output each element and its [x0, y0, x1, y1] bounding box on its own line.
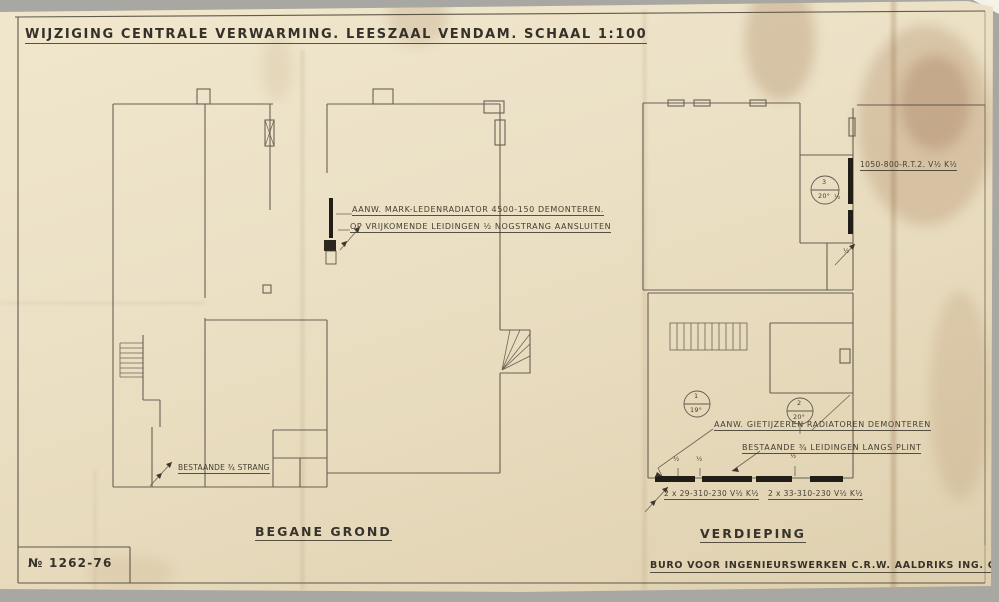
radiator-spec-left: 2 x 29-310-230 V½ K½ — [664, 489, 759, 500]
plan-linework — [0, 0, 999, 602]
first-floor-radiator-icons — [655, 158, 853, 482]
note-remove-line1: AANW. GIETIJZEREN RADIATOREN DEMONTEREN — [714, 420, 931, 431]
room-2-temp: 20° — [793, 413, 805, 421]
ground-floor-leader-lines — [150, 214, 360, 486]
room-2-number: 2 — [797, 399, 801, 407]
pipe-label: ½ — [673, 455, 680, 463]
first-floor-leader-lines — [645, 244, 855, 512]
drawing-number: № 1262-76 — [28, 556, 113, 570]
first-floor-label: VERDIEPING — [700, 526, 806, 543]
sheet-title: WIJZIGING CENTRALE VERWARMING. LEESZAAL … — [25, 27, 647, 44]
arrowheads — [650, 244, 855, 506]
room-3-temp: 20° — [818, 192, 830, 200]
arrowheads — [156, 227, 360, 479]
photograph-of-drawing: WIJZIGING CENTRALE VERWARMING. LEESZAAL … — [0, 0, 999, 602]
ground-floor-label: BEGANE GROND — [255, 524, 392, 541]
note-radiator-spec: 1050-800-R.T.2. V½ K½ — [860, 160, 957, 171]
note-existing-riser: BESTAANDE ¾ STRANG — [178, 463, 270, 474]
drawing-sheet: WIJZIGING CENTRALE VERWARMING. LEESZAAL … — [0, 0, 999, 602]
ground-floor-stair-icon — [120, 343, 143, 377]
pipe-label: ½ — [843, 247, 850, 255]
room-3-number: 3 — [822, 178, 826, 186]
footer-company: BURO VOOR INGENIEURSWERKEN C.R.W. AALDRI… — [650, 560, 999, 573]
note-remove-line2: BESTAANDE ¾ LEIDINGEN LANGS PLINT — [742, 443, 921, 454]
pipe-label: ½ — [790, 452, 797, 460]
room-1-number: 1 — [694, 392, 698, 400]
room-1-temp: 19° — [690, 406, 702, 414]
room-circle-symbols — [684, 176, 839, 424]
first-floor-stair-icon — [670, 323, 747, 350]
pipe-label: ½ — [834, 193, 841, 201]
ground-floor-radiator-icon — [324, 198, 336, 264]
note-radiator-line2: OP VRIJKOMENDE LEIDINGEN ½ NOGSTRANG AAN… — [350, 222, 611, 233]
pipe-label: ½ — [696, 455, 703, 463]
ground-floor-walls — [113, 89, 530, 487]
radiator-spec-right: 2 x 33-310-230 V½ K½ — [768, 489, 863, 500]
note-radiator-line1: AANW. MARK-LEDENRADIATOR 4500-150 DEMONT… — [352, 205, 604, 216]
winder-stair-icon — [502, 330, 530, 370]
